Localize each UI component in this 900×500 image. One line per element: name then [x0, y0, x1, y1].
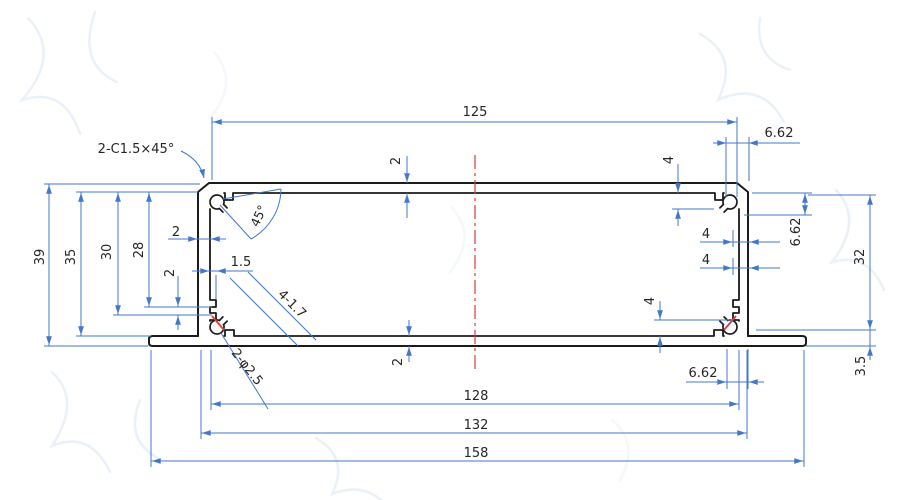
dim-132-label: 132 — [464, 418, 489, 433]
profile-inner-wall-left — [210, 209, 216, 321]
dim-4-right-lower-label: 4 — [702, 253, 710, 268]
dim-4-right-upper-label: 4 — [702, 227, 710, 242]
dim-3-5-label: 3.5 — [854, 356, 869, 377]
centerline-group — [212, 155, 736, 372]
corner-angle-label: 45° — [247, 203, 270, 229]
dim-1-5-label: 1.5 — [231, 255, 252, 270]
dim-662-bottom-label: 6.62 — [689, 366, 718, 381]
profile-cavity-floor — [224, 330, 724, 336]
dimension-lines — [44, 117, 876, 467]
dim-30-label: 30 — [100, 244, 115, 261]
dim-125-label: 125 — [463, 105, 488, 120]
chamfer-leader — [181, 151, 204, 178]
dim-32-label: 32 — [853, 249, 868, 266]
profile-bottom-plate — [149, 336, 806, 346]
dim-4-top-label: 4 — [662, 156, 677, 164]
profile-outer — [198, 183, 748, 336]
technical-drawing-page: 2-C1.5×45° 125 6.62 2 4 45° 39 35 30 28 … — [0, 0, 900, 500]
drawing-canvas: 2-C1.5×45° 125 6.62 2 4 45° 39 35 30 28 … — [0, 0, 900, 500]
dim-128-label: 128 — [464, 389, 489, 404]
dimension-labels: 2-C1.5×45° 125 6.62 2 4 45° 39 35 30 28 … — [33, 105, 869, 461]
holes-note-label: 2-φ2.5 — [228, 346, 266, 389]
chamfer-note-label: 2-C1.5×45° — [98, 142, 175, 157]
dim-39-label: 39 — [33, 249, 48, 266]
dim-2-bottom-label: 2 — [391, 358, 406, 366]
profile-inner-top — [224, 193, 724, 200]
profile-inner-wall-right — [733, 209, 739, 321]
dim-35-label: 35 — [64, 249, 79, 266]
dim-2-pitch-label: 2 — [163, 269, 178, 277]
dim-662-right-label: 6.62 — [789, 218, 804, 247]
dim-28-label: 28 — [132, 242, 147, 259]
dim-4-bottom-right-label: 4 — [643, 297, 658, 305]
dim-2-top-label: 2 — [389, 157, 404, 165]
screw-channels-note-label: 4-1.7 — [274, 287, 308, 321]
dim-158-label: 158 — [464, 446, 489, 461]
dim-662-top-label: 6.62 — [765, 126, 794, 141]
dim-2-wall-label: 2 — [172, 225, 180, 240]
